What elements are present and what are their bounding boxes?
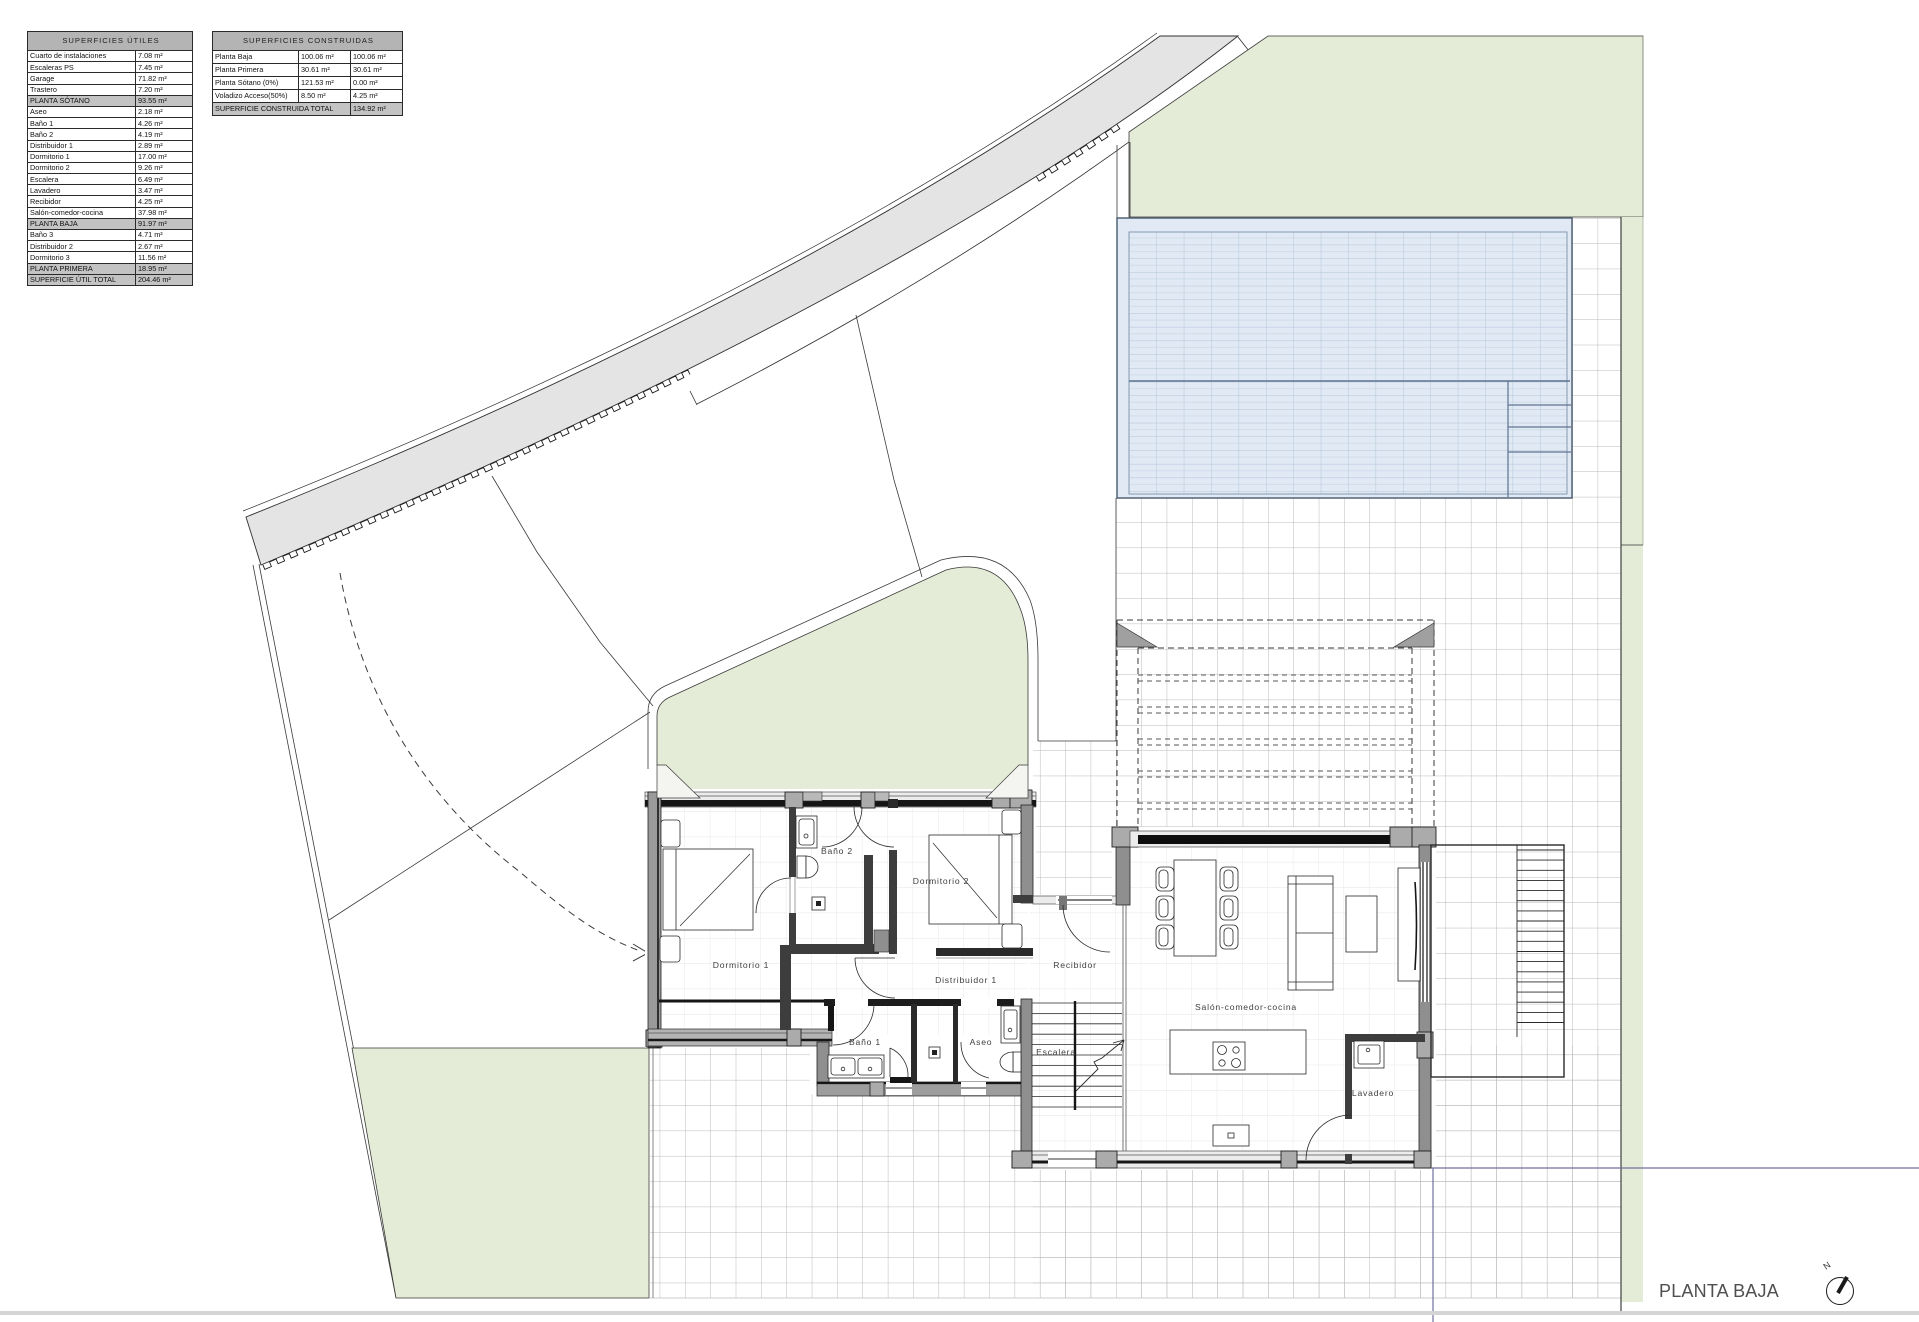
svg-text:Aseo: Aseo [970,1037,993,1047]
svg-text:Recibidor: Recibidor [1053,960,1097,970]
svg-text:Lavadero: Lavadero [1352,1088,1394,1098]
svg-text:N: N [1821,1260,1832,1272]
svg-text:Baño 1: Baño 1 [849,1037,881,1047]
svg-text:Escalera: Escalera [1036,1047,1076,1057]
svg-text:Distribuidor 1: Distribuidor 1 [935,975,997,985]
svg-text:Dormitorio 2: Dormitorio 2 [913,876,969,886]
svg-text:Baño 2: Baño 2 [821,846,853,856]
svg-text:Dormitorio 1: Dormitorio 1 [713,960,769,970]
svg-text:Salón-comedor-cocina: Salón-comedor-cocina [1195,1002,1297,1012]
svg-text:PLANTA BAJA: PLANTA BAJA [1659,1281,1779,1301]
